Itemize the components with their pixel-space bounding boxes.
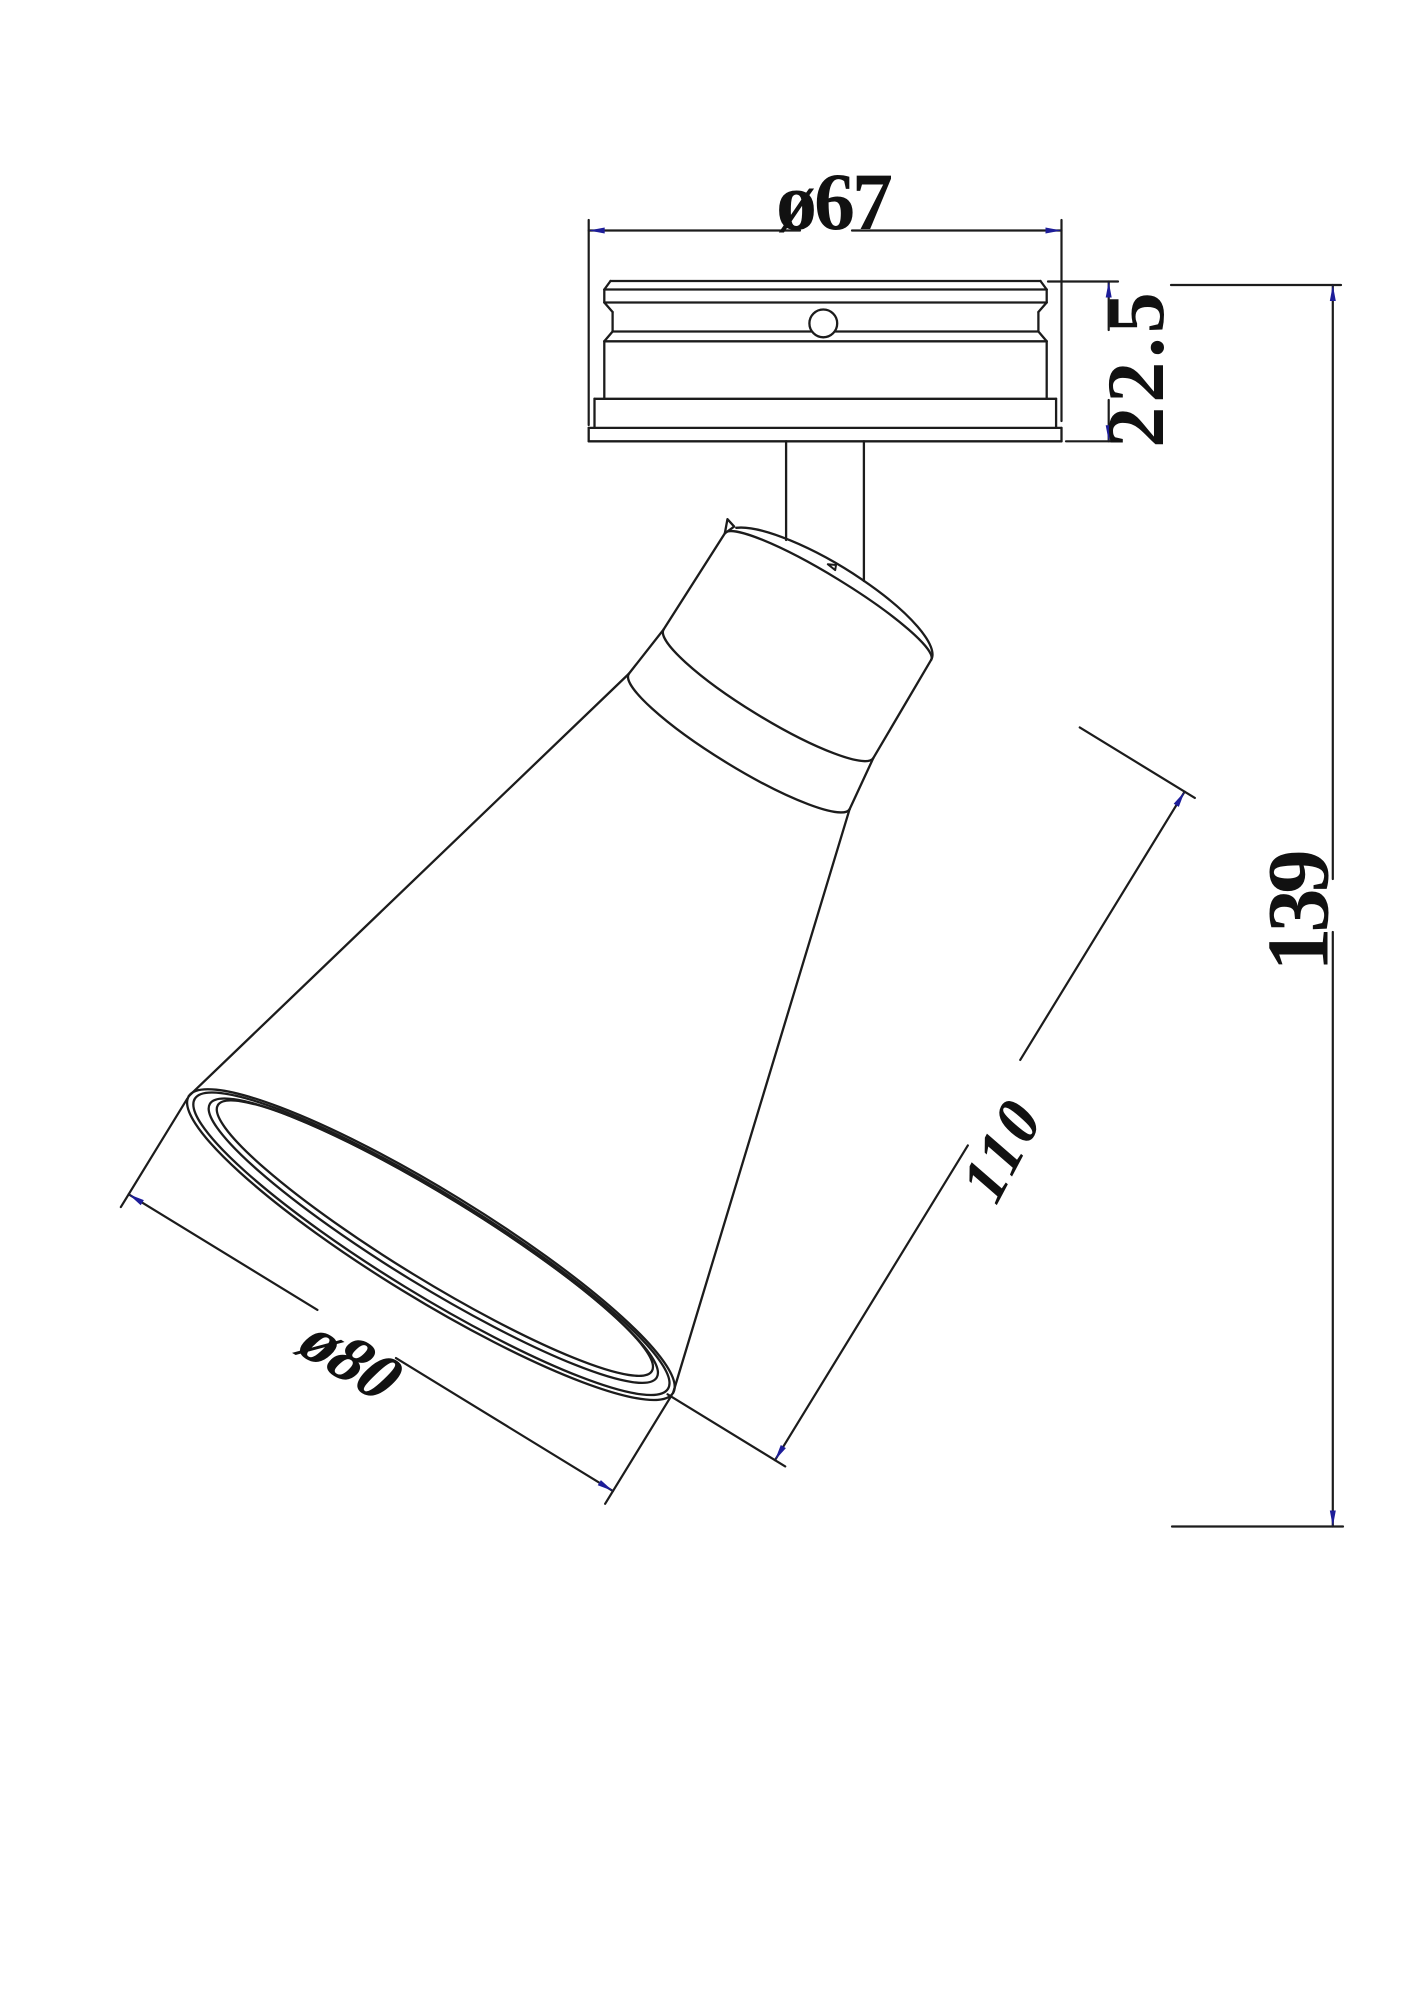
svg-text:ø67: ø67 (776, 156, 891, 247)
svg-text:22.5: 22.5 (1090, 288, 1181, 448)
svg-text:139: 139 (1251, 853, 1348, 972)
svg-text:ø80: ø80 (281, 1306, 422, 1412)
svg-text:110: 110 (951, 1080, 1055, 1220)
